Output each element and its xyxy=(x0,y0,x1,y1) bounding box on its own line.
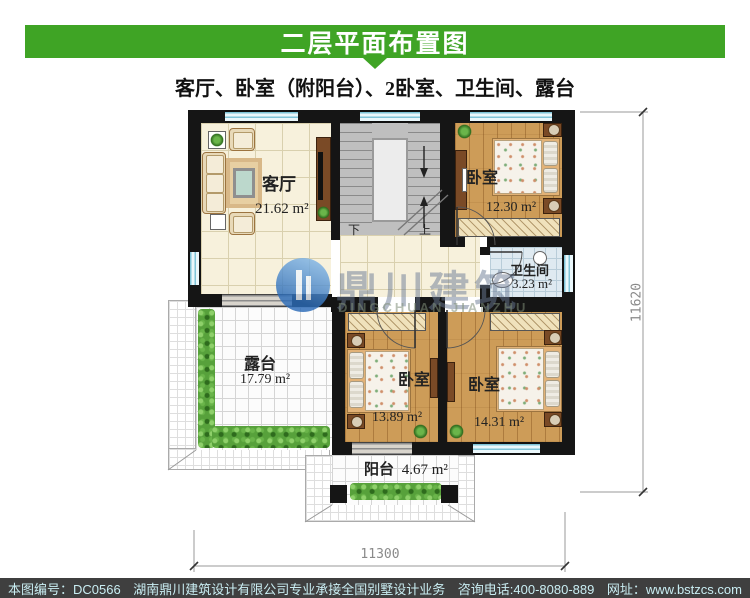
window-bathroom xyxy=(562,255,575,292)
armchair-cushion xyxy=(233,132,253,149)
wardrobe-bedroom-top xyxy=(458,218,560,237)
lamp-icon xyxy=(351,416,363,428)
terrace-eave-left xyxy=(168,300,196,470)
sofa-cushion xyxy=(206,174,224,193)
plant-icon xyxy=(457,124,472,139)
pillow xyxy=(545,380,560,407)
pillow xyxy=(545,351,560,378)
sliding-door-balcony xyxy=(352,442,412,455)
pillow xyxy=(543,141,558,166)
wall-bedroom-left-west xyxy=(332,297,345,455)
balcony-name: 阳台 xyxy=(364,462,394,478)
window xyxy=(225,110,298,123)
window xyxy=(360,110,420,123)
wall-bathroom-top xyxy=(455,237,465,247)
bedroom-top-area: 12.30 m² xyxy=(486,200,536,216)
window xyxy=(188,252,201,285)
armchair-cushion xyxy=(233,216,253,233)
watermark-name-en: DINGCHUAN JIANZHU xyxy=(338,300,528,315)
terrace-area: 17.79 m² xyxy=(240,372,290,388)
footer-bar: 本图编号：DC0566 湖南鼎川建筑设计有限公司专业承接全国别墅设计业务 咨询电… xyxy=(0,578,750,598)
terrace-hedge-bottom xyxy=(212,426,330,448)
balcony-post-right xyxy=(441,485,458,503)
bed-top-mattress xyxy=(494,140,542,194)
terrace-label: 露台 xyxy=(244,350,276,374)
living-room-area: 21.62 m² xyxy=(255,201,309,218)
stair-down-label: 下 xyxy=(348,221,360,238)
stair-steps-right xyxy=(408,123,440,233)
bedroom-left-label: 卧室 xyxy=(398,366,430,390)
bedroom-left-area: 13.89 m² xyxy=(372,410,422,426)
plant-icon xyxy=(210,133,224,147)
stair-steps-left xyxy=(340,123,372,226)
bedroom-right-area: 14.31 m² xyxy=(474,415,524,431)
footer-company: 湖南鼎川建筑设计有限公司专业承接全国别墅设计业务 xyxy=(133,579,445,598)
pillow xyxy=(543,168,558,193)
side-table xyxy=(210,214,226,230)
wall-living-stair xyxy=(331,110,340,240)
floor-plan: 客厅 21.62 m² 卧室 12.30 m² 卫生间 3.23 m² 卧室 1… xyxy=(0,0,750,598)
wall-between-bedrooms xyxy=(438,312,447,442)
lamp-icon xyxy=(351,335,363,347)
balcony-area: 4.67 m² xyxy=(402,462,448,478)
footer-phone: 咨询电话:400-8080-889 xyxy=(458,579,595,598)
lamp-icon xyxy=(548,200,560,212)
dimension-bottom: 11300 xyxy=(350,547,410,562)
balcony-post-left xyxy=(330,485,347,503)
tv-cabinet-bedroom-right xyxy=(447,362,455,402)
lamp-icon xyxy=(548,124,560,136)
pillow xyxy=(349,381,364,408)
pillow xyxy=(349,352,364,379)
stair-up-label: 上 xyxy=(419,221,431,238)
tv-icon xyxy=(318,152,323,200)
footer-website[interactable]: 网址：www.bstzcs.com xyxy=(607,579,742,598)
plant-icon xyxy=(413,424,428,439)
lamp-icon xyxy=(549,414,561,426)
wall-stair-bedroom xyxy=(440,110,455,247)
footer-drawing-no: 本图编号：DC0566 xyxy=(8,579,121,598)
stair-well xyxy=(372,138,408,222)
window xyxy=(470,110,552,123)
wall-bathroom-left xyxy=(480,247,490,255)
balcony-planter xyxy=(350,483,442,500)
dimension-right: 11620 xyxy=(630,273,645,333)
coffee-table xyxy=(233,168,255,198)
balcony-label: 阳台 4.67 m² xyxy=(364,458,448,479)
bed-right-mattress xyxy=(498,348,544,410)
wall-bathroom-top xyxy=(487,237,575,247)
sofa-cushion xyxy=(206,155,224,174)
tv-cabinet-bedroom-left xyxy=(430,358,438,398)
window-bedroom-right xyxy=(473,442,540,455)
lamp-icon xyxy=(549,332,561,344)
watermark-logo-icon xyxy=(276,258,330,312)
bedroom-right-label: 卧室 xyxy=(468,371,500,395)
plant-icon xyxy=(449,424,464,439)
plant-icon xyxy=(317,206,330,219)
living-room-label: 客厅 xyxy=(262,170,296,195)
bedroom-top-label: 卧室 xyxy=(466,164,498,188)
sofa-cushion xyxy=(206,193,224,212)
